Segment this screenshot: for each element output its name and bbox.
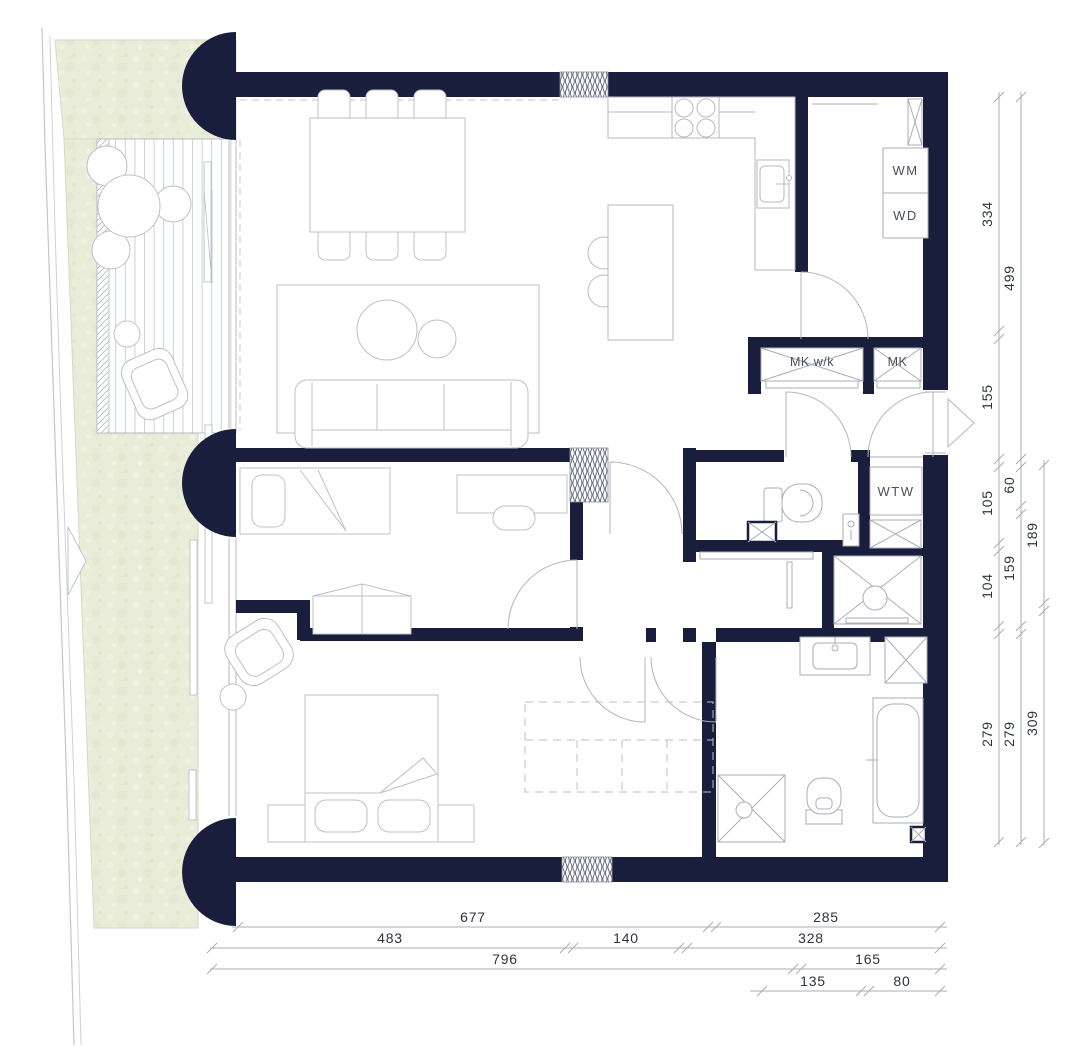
armchair xyxy=(219,612,300,710)
dim-right: 104 xyxy=(979,558,995,614)
wardrobe xyxy=(313,584,411,634)
coffee-table-large xyxy=(357,300,417,360)
dim-right: 279 xyxy=(979,706,995,762)
entrance-arrow-icon xyxy=(948,399,974,447)
dim-right: 155 xyxy=(979,369,995,425)
desk-chair xyxy=(493,506,535,530)
shower-room xyxy=(834,556,921,624)
door-bedroom1 xyxy=(508,560,577,629)
floor-plan: WM WD MK w/k MK WTW 334 155 105 104 279 … xyxy=(0,0,1092,1047)
dim-bottom: 796 xyxy=(475,951,535,967)
bedroom2 xyxy=(219,612,713,842)
wc-tank xyxy=(764,488,782,522)
dim-right: 159 xyxy=(1001,540,1017,596)
bath-sink xyxy=(800,637,870,675)
floorplan-svg xyxy=(0,0,1092,1047)
shaft-box xyxy=(870,520,921,548)
kitchen xyxy=(588,97,795,340)
dim-right: 279 xyxy=(1001,706,1017,762)
closet-mk-wk-label: MK w/k xyxy=(761,355,863,369)
dim-bottom: 328 xyxy=(781,930,841,946)
dim-bottom: 80 xyxy=(872,973,932,989)
dining-table xyxy=(310,118,465,232)
dim-bottom: 483 xyxy=(360,930,420,946)
dim-right: 189 xyxy=(1024,507,1040,563)
dim-right: 309 xyxy=(1024,695,1040,751)
toilet xyxy=(806,778,842,824)
shaft-box xyxy=(908,99,922,145)
dryer-label: WD xyxy=(883,208,928,223)
living-room xyxy=(277,90,539,448)
dim-right: 105 xyxy=(979,475,995,531)
coffee-table-small xyxy=(418,320,456,358)
wtw-label: WTW xyxy=(870,484,922,499)
wc-room xyxy=(764,484,859,546)
dim-bottom: 135 xyxy=(783,973,843,989)
bathroom xyxy=(718,637,927,842)
kitchen-island xyxy=(608,205,673,340)
dim-bottom: 140 xyxy=(596,930,656,946)
closet-mk-label: MK xyxy=(874,355,921,369)
washer-label: WM xyxy=(883,163,928,178)
dim-bottom: 677 xyxy=(443,909,503,925)
shower xyxy=(718,775,785,842)
door-hall-entry xyxy=(868,392,933,457)
dim-right: 499 xyxy=(1001,250,1017,306)
shaft-box xyxy=(885,637,927,683)
wardrobe-dashed xyxy=(525,702,713,792)
single-bed xyxy=(240,468,390,534)
dim-bottom: 165 xyxy=(838,951,898,967)
dim-right: 334 xyxy=(979,186,995,242)
side-table xyxy=(220,684,246,710)
dim-bottom: 285 xyxy=(796,909,856,925)
door-living-hall xyxy=(610,462,682,534)
wall-windows xyxy=(560,72,612,882)
shaft-box-navy xyxy=(911,827,926,842)
door-utility xyxy=(801,272,868,339)
double-bed xyxy=(268,695,474,842)
dim-right: 60 xyxy=(1001,457,1017,513)
door-bedroom2 xyxy=(580,657,645,722)
bathtub xyxy=(866,698,923,823)
washstand xyxy=(700,552,813,608)
shaft-box-navy xyxy=(748,522,776,542)
sofa xyxy=(295,380,528,448)
door-toilet xyxy=(786,392,851,457)
